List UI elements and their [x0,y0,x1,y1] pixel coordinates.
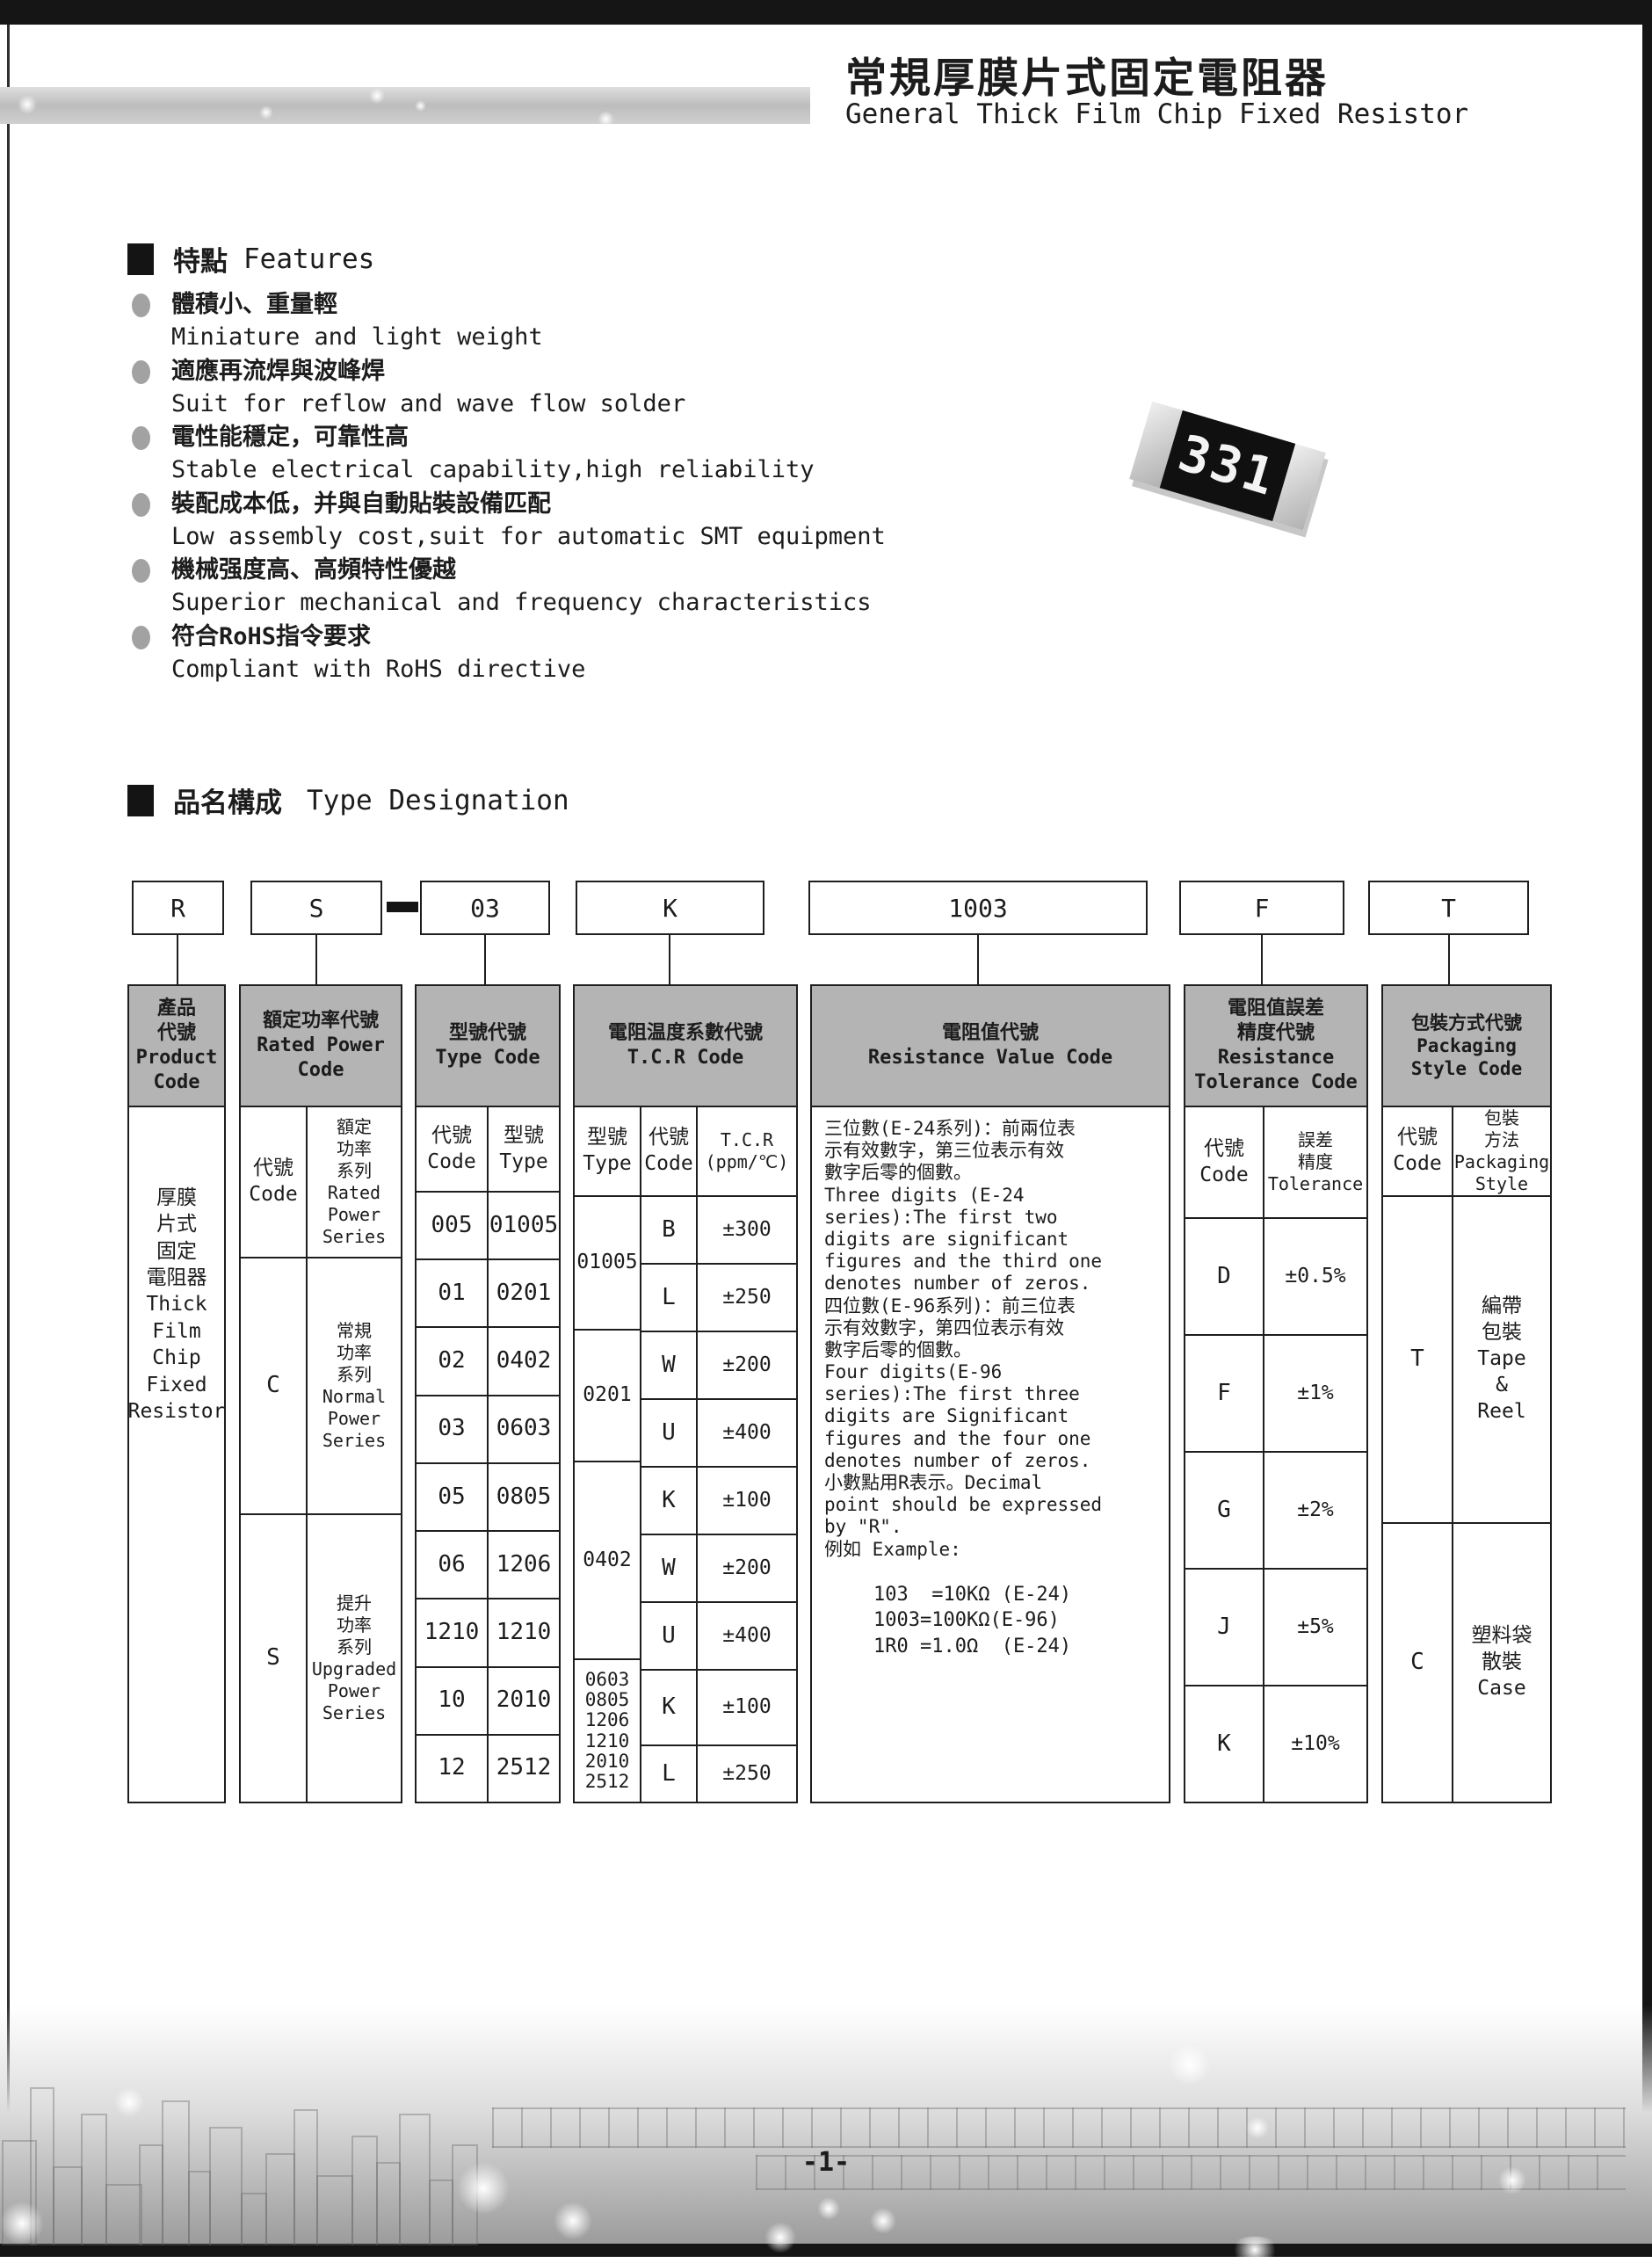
tcr-row: W±200 [641,1534,796,1601]
bullet-icon [132,360,150,384]
footer-deco-rect [53,2166,83,2245]
type-size: 0805 [487,1464,559,1530]
type-code: 03 [417,1396,487,1462]
tolerance-row: K±10% [1185,1685,1366,1802]
tolerance-code: J [1185,1570,1263,1685]
col-label-type: 型號 Type [575,1107,640,1195]
feature-en: Superior mechanical and frequency charac… [171,586,872,619]
type-row: 010201 [417,1258,559,1326]
col-label-code: 代號 Code [417,1107,487,1191]
type-code: 005 [417,1193,487,1258]
connector-line [1261,935,1263,984]
sparkle-decoration [369,88,385,104]
sparkle-decoration [764,2222,796,2253]
footer-deco-rect [316,2175,353,2245]
packaging-code: C [1383,1524,1452,1802]
footer-deco-rect [105,2184,142,2245]
tolerance-code: F [1185,1336,1263,1451]
footer-deco-rect [241,2193,267,2245]
type-row: 030603 [417,1395,559,1462]
page-title-english: General Thick Film Chip Fixed Resistor [845,98,1468,130]
table-column-rated-power: 額定功率代號 Rated Power Code 代號 Code 額定 功率 系列… [239,984,402,1803]
tcr-row: U±400 [641,1601,796,1669]
rated-power-header: 額定功率代號 Rated Power Code [241,986,401,1107]
tcr-row: B±300 [641,1197,796,1263]
tcr-row: L±250 [641,1744,796,1802]
col-label-code: 代號 Code [241,1107,306,1257]
table-column-resistance-value: 電阻值代號 Resistance Value Code 三位數(E-24系列)：… [810,984,1170,1803]
feature-item: 機械强度高、高頻特性優越Superior mechanical and freq… [132,554,1098,620]
type-size: 0402 [487,1328,559,1394]
tolerance-header: 電阻值誤差 精度代號 Resistance Tolerance Code [1185,986,1366,1107]
rated-power-row-S: S 提升 功率 系列 Upgraded Power Series [241,1513,401,1802]
power-code: C [241,1258,306,1513]
tcr-rows: B±300 L±250 W±200 U±400 K±100 W±200 U±40… [640,1197,796,1802]
type-row: 122512 [417,1734,559,1802]
feature-cn: 電性能穩定，可靠性高 [171,421,815,453]
table-column-type-code: 型號代號 Type Code 代號 Code 型號 Type 00501005 … [415,984,561,1803]
type-row: 12101210 [417,1598,559,1665]
rated-power-subheader: 代號 Code 額定 功率 系列 Rated Power Series [241,1107,401,1257]
type-code: 02 [417,1328,487,1394]
tcr-value: ±300 [696,1197,796,1263]
power-series: 提升 功率 系列 Upgraded Power Series [306,1515,401,1802]
footer-deco-rect [209,2127,243,2245]
col-label-code: 代號 Code [640,1107,696,1195]
table-column-packaging: 包裝方式代號 Packaging Style Code 代號 Code 包裝 方… [1381,984,1552,1803]
scan-border-left [7,25,10,2244]
tolerance-code: K [1185,1686,1263,1802]
feature-cn: 符合RoHS指令要求 [171,620,585,653]
sparkle-decoration [0,2201,44,2245]
features-list: 體積小、重量輕Miniature and light weight 適應再流焊與… [132,288,1098,686]
footer-deco-rect [188,2171,211,2245]
type-size: 0201 [487,1260,559,1326]
rated-power-row-C: C 常規 功率 系列 Normal Power Series [241,1257,401,1513]
tcr-value: ±100 [696,1671,796,1744]
features-heading-cn: 特點 [173,239,228,279]
feature-en: Suit for reflow and wave flow solder [171,388,685,420]
section-square-icon [127,243,154,275]
feature-en: Miniature and light weight [171,321,543,353]
tcr-row: U±400 [641,1398,796,1466]
feature-item: 裝配成本低，并與自動貼裝設備匹配Low assembly cost,suit f… [132,488,1098,554]
tcr-code: K [641,1468,696,1534]
type-code: 1210 [417,1599,487,1665]
features-section-heading: 特點 Features [127,239,374,279]
power-code: S [241,1515,306,1802]
tolerance-value: ±1% [1263,1336,1366,1451]
tcr-value: ±200 [696,1535,796,1601]
tolerance-code: D [1185,1219,1263,1334]
type-size: 0603 [487,1396,559,1462]
tcr-code: W [641,1332,696,1398]
designation-box-tcr: K [576,881,764,935]
feature-item: 體積小、重量輕Miniature and light weight [132,288,1098,354]
packaging-row-T: T 編帶 包裝 Tape & Reel [1383,1195,1550,1522]
tolerance-subheader: 代號 Code 誤差 精度 Tolerance [1185,1107,1366,1217]
sparkle-decoration [554,2201,592,2240]
col-label-code: 代號 Code [1185,1107,1263,1217]
designation-box-value: 1003 [808,881,1148,935]
scan-border-top [0,0,1652,25]
tcr-code: L [641,1265,696,1331]
bullet-icon [132,294,150,317]
tcr-code: U [641,1603,696,1669]
product-body: 厚膜 片式 固定 電阻器 Thick Film Chip Fixed Resis… [129,1107,224,1802]
tcr-row: K±100 [641,1466,796,1534]
designation-dash [387,902,418,912]
type-size: 1206 [487,1532,559,1598]
designation-box-power: S [250,881,382,935]
tcr-value: ±200 [696,1332,796,1398]
feature-en: Low assembly cost,suit for automatic SMT… [171,520,886,553]
packaging-row-C: C 塑料袋 散裝 Case [1383,1522,1550,1802]
tcr-code: U [641,1400,696,1466]
type-code: 12 [417,1736,487,1802]
connector-line [484,935,486,984]
feature-item: 適應再流焊與波峰焊Suit for reflow and wave flow s… [132,355,1098,421]
tcr-row: L±250 [641,1263,796,1331]
type-row: 00501005 [417,1191,559,1258]
tcr-subheader: 型號 Type 代號 Code T.C.R (ppm/℃) [575,1107,796,1195]
tcr-value: ±100 [696,1468,796,1534]
footer-deco-rect [429,2180,453,2245]
tolerance-value: ±0.5% [1263,1219,1366,1334]
connector-line [669,935,670,984]
chip-marking: 331 [1172,424,1283,507]
sparkle-decoration [1169,2043,1211,2085]
tolerance-row: F±1% [1185,1334,1366,1451]
feature-cn: 機械强度高、高頻特性優越 [171,554,872,586]
tcr-code: L [641,1746,696,1802]
table-column-tcr: 電阻温度系數代號 T.C.R Code 型號 Type 代號 Code T.C.… [573,984,798,1803]
power-series: 常規 功率 系列 Normal Power Series [306,1258,401,1513]
type-code-header: 型號代號 Type Code [417,986,559,1107]
feature-en: Stable electrical capability,high reliab… [171,453,815,486]
sparkle-decoration [1246,2116,1269,2139]
col-label-style: 包裝 方法 Packaging Style [1452,1107,1550,1195]
sparkle-decoration [870,2208,896,2234]
designation-section-heading: 品名構成 Type Designation [127,780,569,820]
type-row: 061206 [417,1530,559,1598]
tcr-row: W±200 [641,1331,796,1398]
type-size: 01005 [487,1193,559,1258]
feature-en: Compliant with RoHS directive [171,653,585,685]
bullet-icon [132,493,150,517]
tcr-type-group: 0402 [575,1461,640,1658]
sparkle-decoration [598,111,614,127]
packaging-header: 包裝方式代號 Packaging Style Code [1383,986,1550,1107]
packaging-style: 編帶 包裝 Tape & Reel [1452,1197,1550,1522]
packaging-code: T [1383,1197,1452,1522]
tolerance-row: J±5% [1185,1568,1366,1685]
sparkle-decoration [1228,2237,1281,2263]
tolerance-value: ±2% [1263,1453,1366,1568]
footer-deco-rect [399,2114,431,2245]
tcr-type-group: 01005 [575,1197,640,1329]
tolerance-row: D±0.5% [1185,1217,1366,1334]
page-number: -1- [0,2147,1652,2178]
tcr-code: B [641,1197,696,1263]
tolerance-code: G [1185,1453,1263,1568]
tcr-value: ±400 [696,1603,796,1669]
tcr-row: K±100 [641,1669,796,1744]
chip-body: 331 [1129,402,1326,531]
feature-cn: 適應再流焊與波峰焊 [171,355,685,388]
col-label-type: 型號 Type [487,1107,559,1191]
feature-cn: 體積小、重量輕 [171,288,543,321]
col-label-series: 額定 功率 系列 Rated Power Series [306,1107,401,1257]
type-row: 020402 [417,1326,559,1394]
designation-box-type: 03 [420,881,550,935]
type-size: 2512 [487,1736,559,1802]
resistance-value-header: 電阻值代號 Resistance Value Code [812,986,1169,1107]
feature-item: 符合RoHS指令要求Compliant with RoHS directive [132,620,1098,686]
packaging-style: 塑料袋 散裝 Case [1452,1524,1550,1802]
resistor-chip-image: 331 [1127,401,1346,577]
connector-line [177,935,178,984]
designation-box-tolerance: F [1179,881,1344,935]
footer-deco-rect [81,2114,107,2245]
type-code: 05 [417,1464,487,1530]
connector-line [977,935,979,984]
tcr-type-groups: 01005 0201 0402 0603 0805 1206 1210 2010… [575,1197,640,1802]
tcr-value: ±250 [696,1265,796,1331]
product-header: 產品 代號 Product Code [129,986,224,1107]
page-title-chinese: 常規厚膜片式固定電阻器 [845,44,1329,105]
bullet-icon [132,426,150,450]
type-code-subheader: 代號 Code 型號 Type [417,1107,559,1191]
designation-heading-cn: 品名構成 [173,780,282,820]
type-row: 050805 [417,1462,559,1530]
tcr-code: W [641,1535,696,1601]
designation-heading-en: Type Designation [307,785,569,816]
datasheet-page: { "header": { "title_cn": "常規厚膜片式固定電阻器",… [0,0,1652,2257]
col-label-tcr: T.C.R (ppm/℃) [696,1107,796,1195]
tcr-value: ±400 [696,1400,796,1466]
tcr-type-group: 0603 0805 1206 1210 2010 2512 [575,1658,640,1802]
sparkle-decoration [259,105,273,120]
tcr-code: K [641,1671,696,1744]
type-size: 2010 [487,1668,559,1734]
type-row: 102010 [417,1666,559,1734]
features-heading-en: Features [243,243,374,275]
packaging-subheader: 代號 Code 包裝 方法 Packaging Style [1383,1107,1550,1195]
tcr-header: 電阻温度系數代號 T.C.R Code [575,986,796,1107]
sparkle-decoration [817,2197,840,2220]
scan-border-right [1642,0,1652,2257]
col-label-tolerance: 誤差 精度 Tolerance [1263,1107,1366,1217]
feature-item: 電性能穩定，可靠性高Stable electrical capability,h… [132,421,1098,487]
bullet-icon [132,626,150,649]
designation-box-packaging: T [1368,881,1529,935]
tcr-type-group: 0201 [575,1329,640,1461]
connector-line [315,935,317,984]
scan-border-bottom [0,2244,1652,2257]
sparkle-decoration [415,100,426,112]
connector-line [1448,935,1450,984]
col-label-code: 代號 Code [1383,1107,1452,1195]
bullet-icon [132,559,150,583]
tolerance-value: ±5% [1263,1570,1366,1685]
feature-cn: 裝配成本低，并與自動貼裝設備匹配 [171,488,886,520]
footer-square-strip [492,2107,1626,2148]
section-square-icon [127,785,154,816]
table-column-tolerance: 電阻值誤差 精度代號 Resistance Tolerance Code 代號 … [1184,984,1368,1803]
tolerance-row: G±2% [1185,1451,1366,1568]
table-column-product: 產品 代號 Product Code 厚膜 片式 固定 電阻器 Thick Fi… [127,984,226,1803]
designation-box-product: R [132,881,224,935]
header-gradient-bar [0,87,810,124]
resistance-value-description: 三位數(E-24系列)：前兩位表 示有效數字，第三位表示有效 數字后零的個數。 … [824,1118,1158,1561]
tolerance-value: ±10% [1263,1686,1366,1802]
type-size: 1210 [487,1599,559,1665]
sparkle-decoration [18,95,37,114]
resistance-value-examples: 103 =10KΩ (E-24) 1003=100KΩ(E-96) 1R0 =1… [824,1582,1158,1660]
type-code: 10 [417,1668,487,1734]
type-code: 06 [417,1532,487,1598]
tcr-value: ±250 [696,1746,796,1802]
type-code: 01 [417,1260,487,1326]
sparkle-decoration [114,2087,144,2117]
